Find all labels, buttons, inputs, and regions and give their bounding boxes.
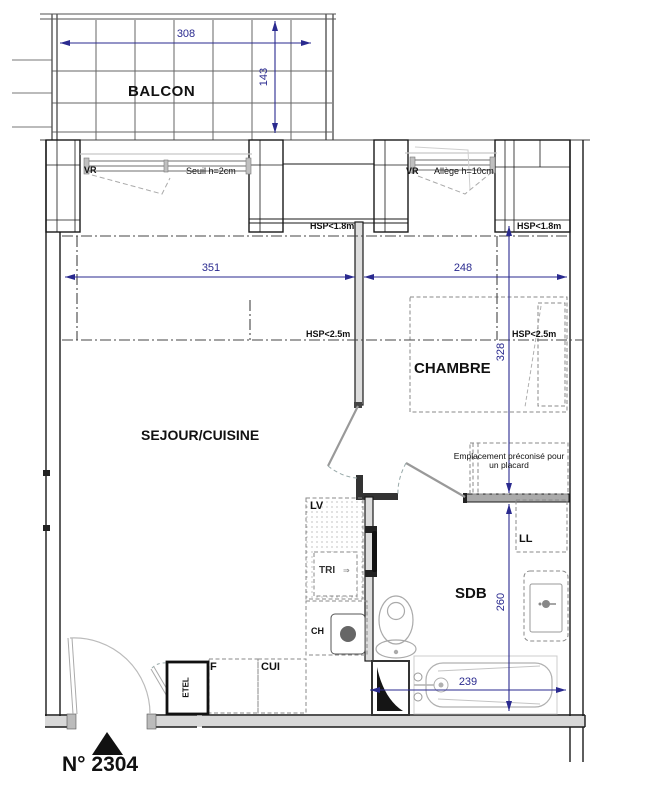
room-label-living: SEJOUR/CUISINE xyxy=(141,428,259,443)
dishwasher-label: LV xyxy=(310,500,323,512)
room-label-bedroom: CHAMBRE xyxy=(414,361,491,378)
living-door xyxy=(328,402,362,478)
dim-328-label: 328 xyxy=(495,337,507,367)
dim-351-label: 351 xyxy=(193,262,229,274)
shutter-label-right: VR xyxy=(406,167,419,177)
technical-closet-label: ETEL xyxy=(183,672,192,702)
apartment-number: N° 2304 xyxy=(62,753,138,776)
room-label-balcony: BALCON xyxy=(128,84,195,101)
dim-308-label: 308 xyxy=(168,28,204,40)
ceiling-height-low-right: HSP<1.8m xyxy=(517,222,561,232)
waste-sorting-arrow: ⇒ xyxy=(343,567,350,576)
room-label-bathroom: SDB xyxy=(455,586,487,603)
dim-239-label: 239 xyxy=(450,676,486,688)
washbasin xyxy=(524,571,568,641)
ceiling-slope-lines xyxy=(62,236,583,340)
floor-plan: BALCON 308 143 VR Seuil h=2cm VR Allège … xyxy=(0,0,650,800)
toilet xyxy=(376,596,416,658)
fridge-label: F xyxy=(210,661,217,673)
dim-260-label: 260 xyxy=(495,587,507,617)
closet-note-line2: un placard xyxy=(489,460,529,470)
floor-plan-drawing xyxy=(0,0,650,800)
kitchen-counter-label: CUI xyxy=(261,661,280,673)
dim-143-label: 143 xyxy=(258,62,270,92)
threshold-note: Seuil h=2cm xyxy=(186,167,236,177)
sill-note: Allège h=10cm xyxy=(434,167,494,177)
waste-sorting-label: TRI xyxy=(319,565,335,576)
washing-machine-label: LL xyxy=(519,533,532,545)
dim-248-label: 248 xyxy=(445,262,481,274)
entry-door xyxy=(68,638,150,714)
dimension-lines xyxy=(60,21,567,711)
kitchen-fixtures xyxy=(209,498,367,713)
shutter-label-left: VR xyxy=(84,166,97,176)
water-heater xyxy=(331,614,365,654)
water-heater-label: CH xyxy=(311,627,324,637)
bed xyxy=(410,297,567,412)
ceiling-height-mid-left: HSP<2.5m xyxy=(306,330,350,340)
ceiling-height-mid-right: HSP<2.5m xyxy=(512,330,556,340)
entrance-triangle xyxy=(92,732,123,755)
ceiling-height-low-left: HSP<1.8m xyxy=(310,222,354,232)
closet-recommendation-note: Emplacement préconisé pour un placard xyxy=(448,452,570,471)
